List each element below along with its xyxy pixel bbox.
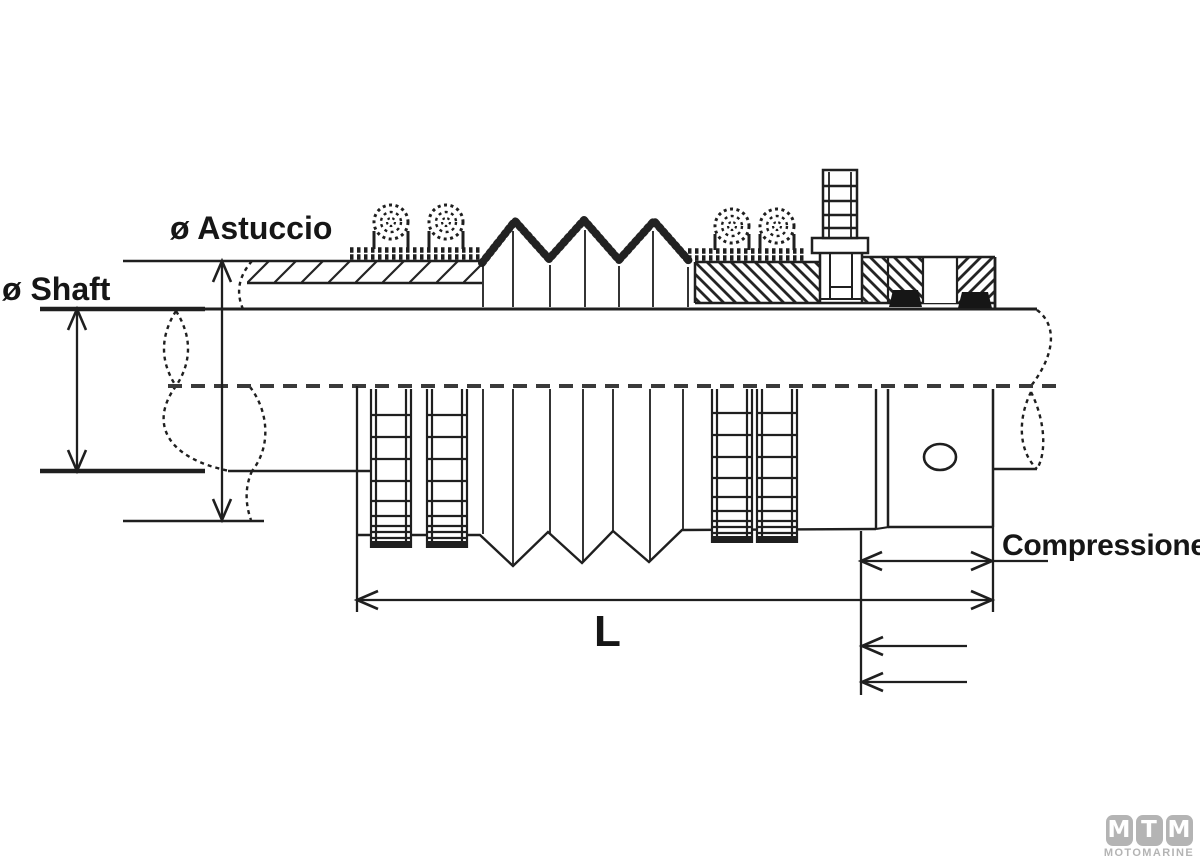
logo-letter-t: T [1136, 815, 1163, 846]
vent-barb-fitting [812, 170, 868, 253]
logo-letter-m2: M [1166, 815, 1193, 846]
logo-subtitle: MOTOMARINE [1103, 847, 1195, 859]
clamp-screw-4 [760, 209, 794, 250]
clamp-screw-3 [715, 209, 749, 250]
label-length: L [594, 607, 621, 656]
label-shaft-diameter: ø Shaft [2, 271, 111, 307]
hose-clamp-band-section-1 [371, 389, 411, 548]
end-cap-section [862, 257, 995, 308]
shaft-seal-technical-drawing: ø Astuccio ø Shaft Compressione L M T M … [0, 0, 1200, 864]
logo-letter-m1: M [1106, 815, 1133, 846]
housing-bottom-block [888, 389, 993, 527]
hose-clamp-band-section-4 [757, 389, 797, 543]
label-astuccio-diameter: ø Astuccio [170, 210, 332, 246]
clamp-screw-1 [374, 205, 408, 249]
set-screw-hole [924, 444, 956, 470]
hose-clamp-band-right [688, 251, 806, 258]
clamp-screw-2 [429, 205, 463, 249]
dimension-arrowheads [68, 261, 992, 691]
shaft-break-line-left [164, 311, 266, 520]
hose-clamp-band-section-3 [712, 389, 752, 543]
lip-seal-2 [958, 292, 992, 308]
shaft-break-line-right [1022, 310, 1051, 469]
hose-clamp-band-left [350, 250, 482, 257]
label-compression: Compressione [1002, 529, 1200, 562]
dimension-lines [68, 261, 1048, 695]
logo-letter-tiles: M T M [1103, 815, 1195, 846]
lip-seal-1 [889, 290, 922, 307]
bellows-top [482, 220, 690, 307]
technical-diagram: ø Astuccio ø Shaft Compressione L [0, 0, 1200, 864]
mtm-motomarine-logo: M T M MOTOMARINE [1103, 815, 1195, 859]
hose-clamp-band-section-2 [427, 389, 467, 548]
